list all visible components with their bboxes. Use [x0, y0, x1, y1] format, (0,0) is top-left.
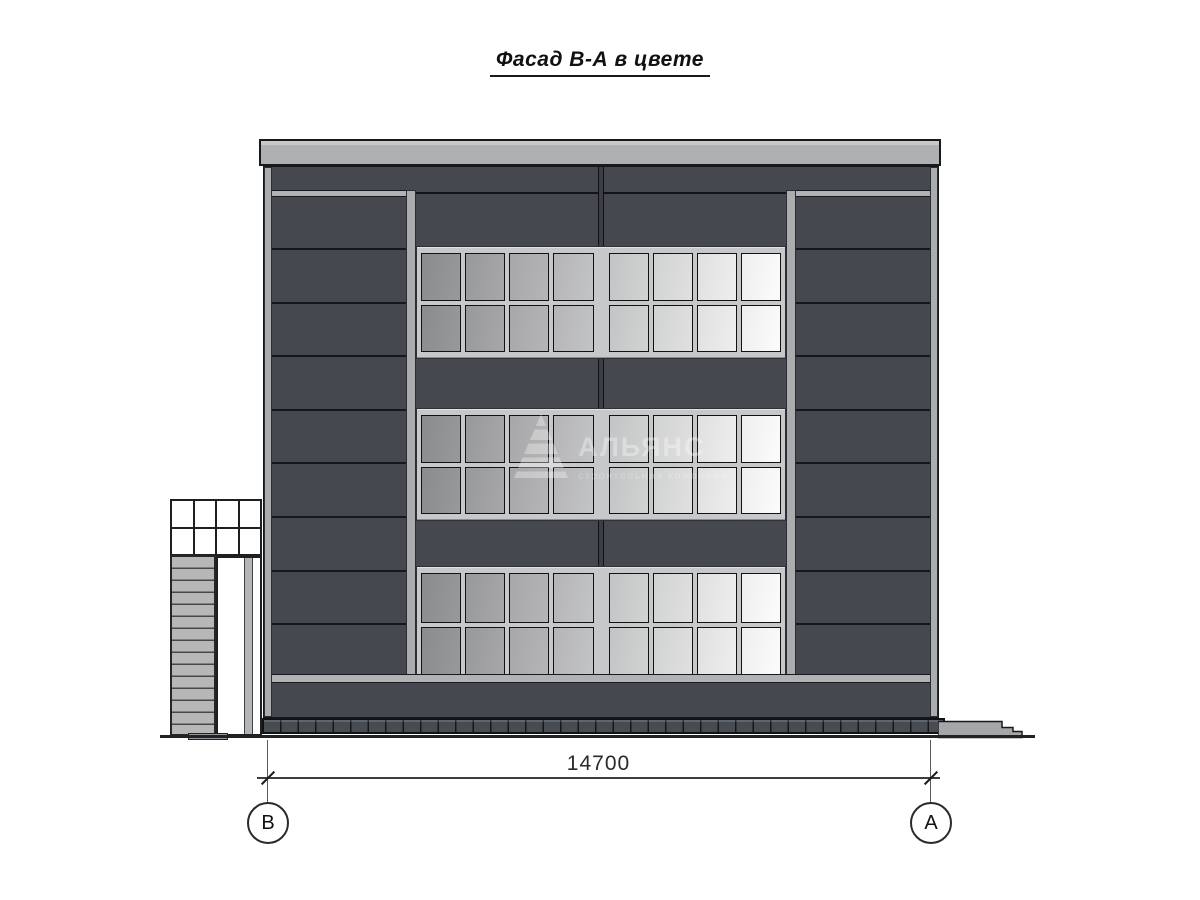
panel-seam — [796, 302, 930, 304]
trim-band-bottom — [272, 674, 930, 683]
title-row: Фасад В-А в цвете — [0, 48, 1200, 77]
glass-pane — [465, 627, 505, 677]
glass-pane — [697, 467, 737, 515]
glass-pane — [697, 305, 737, 353]
glass-pane — [609, 627, 649, 677]
entrance-door — [216, 555, 262, 736]
panel-seam — [796, 462, 930, 464]
glass-pane — [509, 415, 549, 463]
window-center-mullion — [598, 627, 605, 677]
glass-pane — [421, 305, 461, 353]
glass-pane — [421, 573, 461, 623]
axis-marker-a: А — [910, 802, 952, 844]
glass-pane — [553, 627, 593, 677]
glass-pane — [653, 467, 693, 515]
window-center-mullion — [598, 467, 605, 515]
annex-glass-pane — [172, 529, 193, 555]
window-center-mullion — [598, 415, 605, 463]
glass-pane — [653, 253, 693, 301]
window-center-mullion — [598, 253, 605, 301]
glass-pane — [609, 573, 649, 623]
window-band-row — [421, 305, 781, 353]
window-band — [416, 408, 786, 521]
glass-pane — [509, 573, 549, 623]
dimension-line — [257, 777, 940, 779]
annex-glass-pane — [195, 529, 216, 555]
panel-seam — [796, 248, 930, 250]
axis-label-b: В — [261, 812, 274, 835]
panel-seam — [272, 409, 406, 411]
glass-pane — [465, 415, 505, 463]
window-band-row — [421, 415, 781, 463]
panel-seam — [272, 248, 406, 250]
window-band-row — [421, 627, 781, 677]
door-jamb — [244, 558, 253, 734]
roof-parapet — [259, 139, 941, 166]
axis-marker-b: В — [247, 802, 289, 844]
panel-seam — [796, 516, 930, 518]
annex-glass-pane — [217, 529, 238, 555]
axis-label-a: А — [924, 812, 937, 835]
glass-pane — [697, 627, 737, 677]
panel-seam — [796, 355, 930, 357]
glass-pane — [465, 467, 505, 515]
glass-pane — [653, 305, 693, 353]
glass-pane — [553, 253, 593, 301]
glass-pane — [697, 573, 737, 623]
glass-pane — [653, 573, 693, 623]
window-band-row — [421, 573, 781, 623]
panel-seam — [272, 302, 406, 304]
glass-pane — [741, 305, 781, 353]
annex-glass-pane — [195, 501, 216, 527]
glass-pane — [741, 253, 781, 301]
panel-seam — [272, 355, 406, 357]
annex-staircase — [170, 555, 216, 736]
panel-seam — [272, 462, 406, 464]
panel-seam — [272, 570, 406, 572]
panel-seam — [272, 623, 406, 625]
window-band — [416, 246, 786, 359]
pilaster-inner-right — [786, 190, 796, 683]
glass-pane — [741, 627, 781, 677]
glass-pane — [509, 627, 549, 677]
glass-pane — [509, 467, 549, 515]
glass-pane — [697, 415, 737, 463]
annex-glass-pane — [172, 501, 193, 527]
pilaster-inner-left — [406, 190, 416, 683]
window-band-row — [421, 253, 781, 301]
glass-pane — [553, 305, 593, 353]
pilaster-right-edge — [930, 167, 938, 717]
glass-pane — [465, 253, 505, 301]
annex-glass-pane — [217, 501, 238, 527]
panel-seam — [796, 409, 930, 411]
glass-pane — [609, 467, 649, 515]
panel-seam — [796, 623, 930, 625]
window-band — [416, 566, 786, 683]
panel-seam — [272, 516, 406, 518]
glass-pane — [421, 253, 461, 301]
annex-glass-pane — [240, 501, 261, 527]
glass-pane — [609, 253, 649, 301]
glass-pane — [553, 415, 593, 463]
annex-glass-pane — [240, 529, 261, 555]
glass-pane — [741, 415, 781, 463]
dimension-label: 14700 — [257, 752, 940, 776]
building-facade — [263, 166, 939, 718]
pilaster-left-edge — [264, 167, 272, 717]
annex-glazing-grid — [170, 499, 262, 556]
drawing-canvas: Фасад В-А в цвете — [0, 0, 1200, 900]
drawing-title: Фасад В-А в цвете — [490, 48, 710, 77]
ground-line — [160, 735, 1035, 738]
glass-pane — [421, 627, 461, 677]
window-center-mullion — [598, 305, 605, 353]
panel-seam — [796, 570, 930, 572]
trim-band-top-right — [796, 190, 930, 197]
glass-pane — [465, 305, 505, 353]
glass-pane — [653, 415, 693, 463]
glass-pane — [741, 467, 781, 515]
glass-pane — [421, 415, 461, 463]
glass-pane — [509, 253, 549, 301]
glass-pane — [553, 467, 593, 515]
glass-pane — [653, 627, 693, 677]
glass-pane — [465, 573, 505, 623]
glass-pane — [697, 253, 737, 301]
glass-pane — [609, 415, 649, 463]
window-center-mullion — [598, 573, 605, 623]
plinth — [262, 718, 945, 734]
trim-band-top-left — [272, 190, 406, 197]
glass-pane — [421, 467, 461, 515]
glass-pane — [609, 305, 649, 353]
window-band-row — [421, 467, 781, 515]
glass-pane — [553, 573, 593, 623]
glass-pane — [741, 573, 781, 623]
glass-pane — [509, 305, 549, 353]
